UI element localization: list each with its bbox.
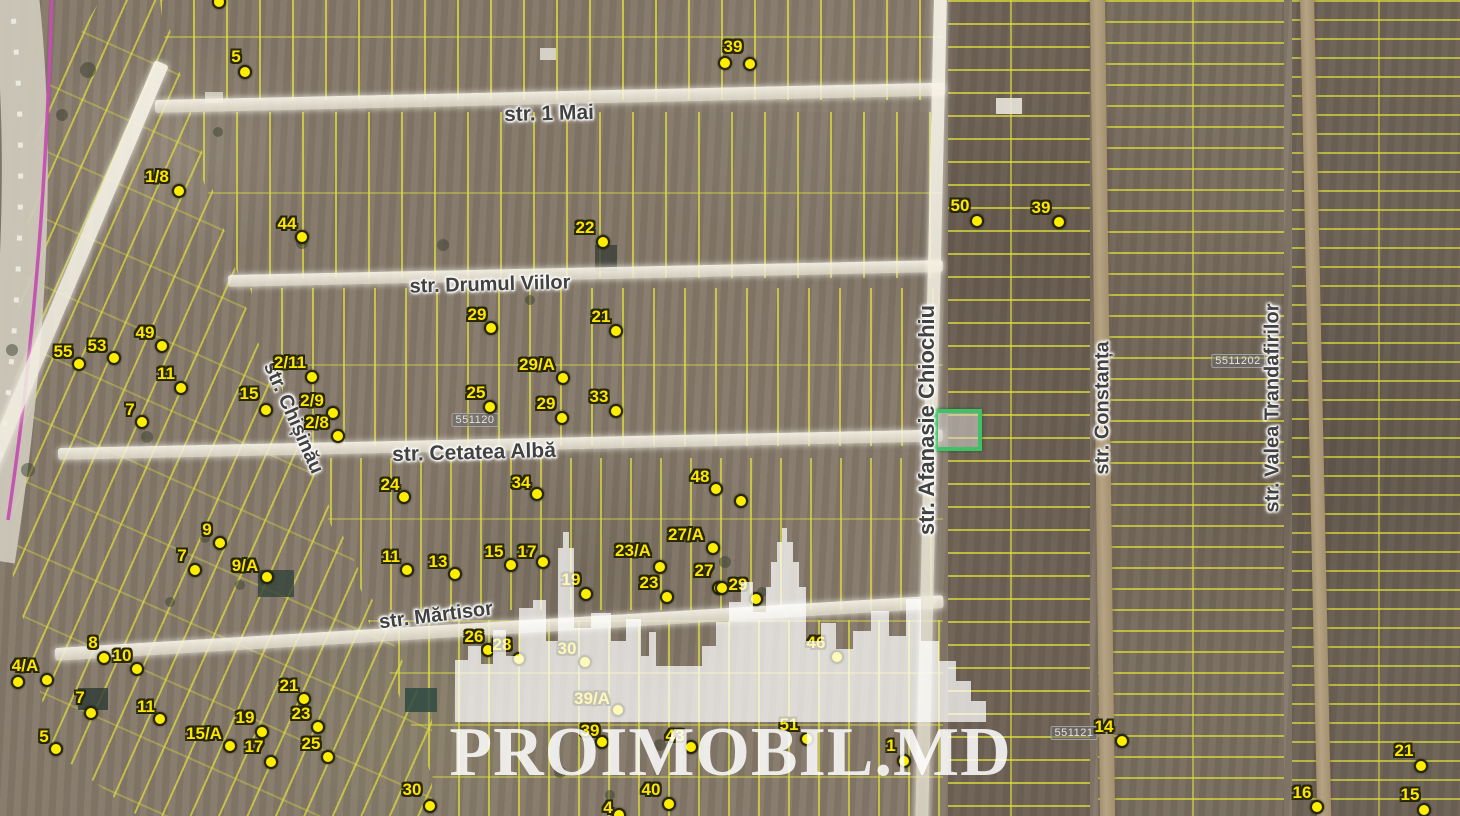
- parcel-marker-dot[interactable]: [448, 567, 462, 581]
- parcel-marker-dot[interactable]: [718, 56, 732, 70]
- parcel-marker-label[interactable]: 21: [280, 676, 299, 696]
- parcel-marker-label[interactable]: 28: [493, 635, 512, 655]
- parcel-marker-dot[interactable]: [213, 536, 227, 550]
- parcel-marker-dot[interactable]: [706, 541, 720, 555]
- parcel-marker-label[interactable]: 23: [292, 704, 311, 724]
- parcel-marker-label[interactable]: 51: [780, 715, 799, 735]
- parcel-marker-dot[interactable]: [749, 592, 763, 606]
- parcel-marker-dot[interactable]: [174, 381, 188, 395]
- parcel-marker-label[interactable]: 5: [39, 727, 48, 747]
- parcel-marker-label[interactable]: 5: [231, 47, 240, 67]
- parcel-marker-label[interactable]: 9/A: [232, 556, 258, 576]
- parcel-marker-dot[interactable]: [596, 235, 610, 249]
- parcel-marker-dot[interactable]: [1115, 734, 1129, 748]
- parcel-marker-dot[interactable]: [135, 415, 149, 429]
- parcel-marker-dot[interactable]: [536, 555, 550, 569]
- parcel-marker-dot[interactable]: [264, 755, 278, 769]
- parcel-marker-label[interactable]: 44: [278, 214, 297, 234]
- parcel-marker-dot[interactable]: [331, 429, 345, 443]
- parcel-marker-label[interactable]: 39: [581, 721, 600, 741]
- cadastral-code-label: 551121: [1051, 726, 1098, 740]
- parcel-marker-label[interactable]: 19: [236, 708, 255, 728]
- parcel-marker-dot[interactable]: [321, 750, 335, 764]
- parcel-marker-dot[interactable]: [130, 662, 144, 676]
- parcel-marker-dot[interactable]: [423, 799, 437, 813]
- parcel-marker-dot[interactable]: [295, 230, 309, 244]
- parcel-block-afanasie-constanta: [948, 0, 1090, 816]
- parcel-marker-label[interactable]: 34: [512, 473, 531, 493]
- parcel-marker-label[interactable]: 11: [157, 364, 175, 384]
- parcel-marker-dot[interactable]: [84, 706, 98, 720]
- parcel-marker-dot[interactable]: [715, 581, 729, 595]
- parcel-marker-label[interactable]: 14: [1095, 717, 1114, 737]
- parcel-marker-label[interactable]: 39: [724, 37, 743, 57]
- parcel-marker-label[interactable]: 25: [467, 383, 486, 403]
- parcel-marker-label[interactable]: 21: [1395, 741, 1414, 761]
- street-label-str-cetatea-alb-: str. Cetatea Albă: [392, 439, 556, 467]
- parcel-marker-label[interactable]: 2/11: [274, 353, 306, 373]
- parcel-marker-dot[interactable]: [1052, 215, 1066, 229]
- parcel-marker-label[interactable]: 29: [468, 305, 487, 325]
- parcel-marker-label[interactable]: 27/A: [668, 525, 704, 545]
- parcel-marker-label[interactable]: 23/A: [615, 541, 651, 561]
- parcel-marker-dot[interactable]: [830, 650, 844, 664]
- street-label-str-constan-a: str. Constanța: [1092, 341, 1115, 474]
- parcel-marker-label[interactable]: 49: [136, 323, 155, 343]
- parcel-marker-dot[interactable]: [734, 494, 748, 508]
- parcel-marker-dot[interactable]: [11, 675, 25, 689]
- parcel-marker-label[interactable]: 33: [590, 387, 609, 407]
- parcel-marker-label[interactable]: 26: [465, 627, 484, 647]
- parcel-marker-dot[interactable]: [662, 797, 676, 811]
- parcel-marker-label[interactable]: 4/A: [12, 656, 38, 676]
- street-label-str-1-mai: str. 1 Mai: [504, 101, 594, 127]
- street-label-str-afanasie-chiochiu: str. Afanasie Chiochiu: [914, 305, 940, 535]
- parcel-marker-label[interactable]: 11: [382, 547, 400, 567]
- parcel-marker-label[interactable]: 10: [113, 646, 132, 666]
- parcel-marker-dot[interactable]: [400, 563, 414, 577]
- parcel-marker-dot[interactable]: [800, 732, 814, 746]
- parcel-marker-dot[interactable]: [40, 673, 54, 687]
- parcel-marker-dot[interactable]: [611, 703, 625, 717]
- parcel-marker-dot[interactable]: [970, 214, 984, 228]
- parcel-marker-label[interactable]: 29: [729, 575, 748, 595]
- parcel-marker-dot[interactable]: [72, 357, 86, 371]
- parcel-marker-label[interactable]: 11: [137, 697, 155, 717]
- parcel-marker-dot[interactable]: [155, 339, 169, 353]
- parcel-marker-label[interactable]: 46: [807, 633, 826, 653]
- street-label-str-valea-trandafirilor: str. Valea Trandafirilor: [1262, 304, 1285, 513]
- parcel-marker-label[interactable]: 2/8: [305, 413, 329, 433]
- parcel-marker-label[interactable]: 25: [302, 734, 321, 754]
- parcel-marker-dot[interactable]: [709, 482, 723, 496]
- parcel-marker-dot[interactable]: [311, 720, 325, 734]
- parcel-marker-label[interactable]: 21: [592, 307, 611, 327]
- parcel-marker-label[interactable]: 16: [1293, 783, 1312, 803]
- parcel-marker-label[interactable]: 1: [886, 736, 895, 756]
- parcel-marker-label[interactable]: 7: [125, 400, 134, 420]
- parcel-marker-dot[interactable]: [556, 371, 570, 385]
- parcel-block-constanta-valea: [1098, 0, 1284, 816]
- parcel-marker-label[interactable]: 29/A: [519, 355, 555, 375]
- cadastral-code-label: 551120: [452, 413, 499, 427]
- parcel-marker-label[interactable]: 53: [88, 336, 107, 356]
- parcel-marker-label[interactable]: 30: [403, 780, 422, 800]
- parcel-marker-dot[interactable]: [305, 370, 319, 384]
- parcel-marker-label[interactable]: 27: [695, 561, 714, 581]
- parcel-block-1mai-drumul: [170, 112, 942, 278]
- parcel-marker-dot[interactable]: [512, 652, 526, 666]
- parcel-marker-label[interactable]: 19: [562, 570, 581, 590]
- parcel-marker-label[interactable]: 40: [642, 780, 661, 800]
- parcel-marker-dot[interactable]: [107, 351, 121, 365]
- parcel-marker-label[interactable]: 15/A: [186, 724, 222, 744]
- parcel-marker-label[interactable]: 55: [54, 342, 73, 362]
- parcel-marker-label[interactable]: 17: [518, 542, 537, 562]
- parcel-marker-dot[interactable]: [660, 590, 674, 604]
- parcel-marker-label[interactable]: 39: [1032, 198, 1051, 218]
- parcel-marker-dot[interactable]: [1310, 800, 1324, 814]
- parcel-marker-label[interactable]: 22: [576, 218, 595, 238]
- parcel-marker-dot[interactable]: [530, 487, 544, 501]
- parcel-marker-dot[interactable]: [223, 739, 237, 753]
- parcel-marker-dot[interactable]: [579, 587, 593, 601]
- parcel-marker-dot[interactable]: [653, 560, 667, 574]
- street-label-str-drumul-viilor: str. Drumul Viilor: [409, 271, 570, 298]
- parcel-marker-label[interactable]: 39/A: [574, 689, 610, 709]
- cadastral-code-label: 5511202: [1211, 354, 1265, 368]
- parcel-marker-label[interactable]: 1/8: [145, 167, 169, 187]
- parcel-marker-dot[interactable]: [188, 563, 202, 577]
- parcel-marker-dot[interactable]: [259, 403, 273, 417]
- parcel-marker-dot[interactable]: [49, 742, 63, 756]
- parcel-marker-label[interactable]: 30: [558, 639, 577, 659]
- parcel-marker-dot[interactable]: [504, 558, 518, 572]
- parcel-marker-dot[interactable]: [612, 808, 626, 816]
- parcel-marker-dot[interactable]: [684, 740, 698, 754]
- parcel-marker-dot[interactable]: [555, 411, 569, 425]
- parcel-marker-dot[interactable]: [153, 712, 167, 726]
- parcel-marker-dot[interactable]: [897, 754, 911, 768]
- parcel-marker-label[interactable]: 24: [381, 475, 400, 495]
- parcel-marker-label[interactable]: 9: [202, 520, 211, 540]
- parcel-marker-label[interactable]: 15: [1401, 785, 1420, 805]
- parcel-marker-label[interactable]: 8: [88, 633, 97, 653]
- parcel-marker-dot[interactable]: [260, 570, 274, 584]
- parcel-marker-label[interactable]: 48: [691, 467, 710, 487]
- parcel-marker-label[interactable]: 15: [485, 542, 504, 562]
- parcel-marker-label[interactable]: 23: [640, 573, 659, 593]
- parcel-marker-dot[interactable]: [238, 65, 252, 79]
- parcel-marker-label[interactable]: 29: [537, 394, 556, 414]
- parcel-marker-dot[interactable]: [578, 655, 592, 669]
- parcel-marker-label[interactable]: 50: [951, 196, 970, 216]
- parcel-marker-label[interactable]: 2/9: [300, 391, 324, 411]
- parcel-marker-label[interactable]: 17: [245, 737, 264, 757]
- parcel-marker-dot[interactable]: [743, 57, 757, 71]
- parcel-marker-dot[interactable]: [609, 404, 623, 418]
- satellite-map[interactable]: 5511205511202551121 str. 1 Maistr. Drumu…: [0, 0, 1460, 816]
- parcel-marker-dot[interactable]: [172, 184, 186, 198]
- parcel-marker-dot[interactable]: [97, 651, 111, 665]
- parcel-marker-label[interactable]: 15: [240, 384, 259, 404]
- parcel-marker-label[interactable]: 4: [603, 798, 612, 816]
- parcel-marker-dot[interactable]: [609, 324, 623, 338]
- selected-parcel-highlight[interactable]: [934, 409, 982, 451]
- parcel-marker-label[interactable]: 43: [666, 726, 685, 746]
- parcel-marker-label[interactable]: 7: [75, 688, 84, 708]
- parcel-marker-label[interactable]: 7: [177, 546, 186, 566]
- parcel-marker-label[interactable]: 13: [429, 552, 448, 572]
- parcel-marker-dot[interactable]: [1414, 759, 1428, 773]
